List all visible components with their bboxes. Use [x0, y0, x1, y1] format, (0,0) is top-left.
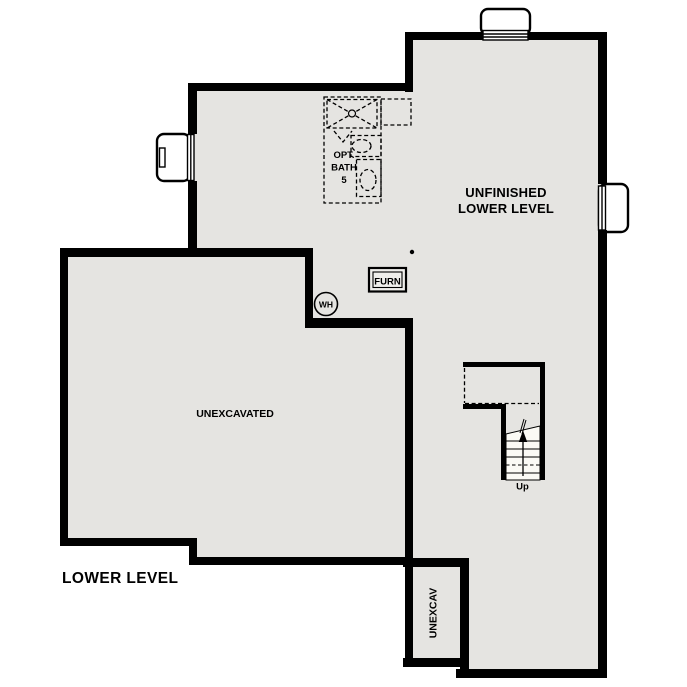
wall-top-right-b [528, 32, 607, 40]
furnace-icon: FURN [369, 268, 406, 292]
wall-center-vertical [405, 318, 413, 667]
opt-bath-label-line1: OPT. [333, 150, 354, 161]
wall-unexcav-right [460, 558, 469, 669]
wall-top-right-a [405, 32, 483, 40]
wall-middle-left-lower [188, 181, 197, 257]
wall-south-right [456, 669, 607, 678]
room-label-unfinished-line2: LOWER LEVEL [458, 201, 554, 216]
wall-stair-inner-v [501, 404, 506, 480]
wall-east-upper [598, 32, 607, 184]
water-heater-icon: WH [315, 293, 338, 316]
wall-notch-horizontal [305, 318, 413, 328]
room-label-unexcavated: UNEXCAVATED [196, 408, 274, 420]
wall-middle-left-upper [188, 83, 197, 134]
floor-middle-section [188, 83, 413, 257]
wall-stair-right [540, 362, 545, 480]
window-left [188, 135, 195, 181]
window-top [483, 31, 528, 41]
room-label-unexcav: UNEXCAV [428, 588, 440, 639]
room-label-unfinished-line1: UNFINISHED [465, 185, 546, 200]
furnace-label: FURN [374, 277, 401, 288]
wall-unexcavated-left [60, 248, 68, 546]
wall-stair-inner-h [463, 404, 506, 409]
wall-unexcavated-bottom-a [60, 538, 197, 546]
stairs-up-label: Up [516, 482, 529, 493]
wall-unexcav-top [403, 558, 469, 567]
column-dot [410, 250, 414, 254]
wall-east-lower [598, 230, 607, 678]
floor-right-section [405, 32, 607, 678]
water-heater-label: WH [319, 300, 333, 310]
floor-plan: OPT. BATH 5 Up WH FURN UNFINISHED LO [0, 0, 687, 687]
wall-notch-vertical [305, 248, 313, 328]
plan-title: LOWER LEVEL [62, 570, 178, 587]
opt-bath-label-line2: BATH [331, 163, 357, 174]
wall-middle-top [188, 83, 413, 91]
wall-unexcav-bottom [403, 658, 465, 667]
wall-stair-top [463, 362, 545, 367]
window-well-left-step [160, 148, 166, 167]
wall-unexcavated-top [60, 248, 313, 257]
opt-bath-label-line3: 5 [341, 175, 347, 186]
floor-unexcavated-section [60, 248, 413, 565]
window-right [599, 186, 606, 230]
wall-unexcavated-bottom-b [189, 557, 413, 565]
floor-plan-page: OPT. BATH 5 Up WH FURN UNFINISHED LO [0, 0, 687, 687]
